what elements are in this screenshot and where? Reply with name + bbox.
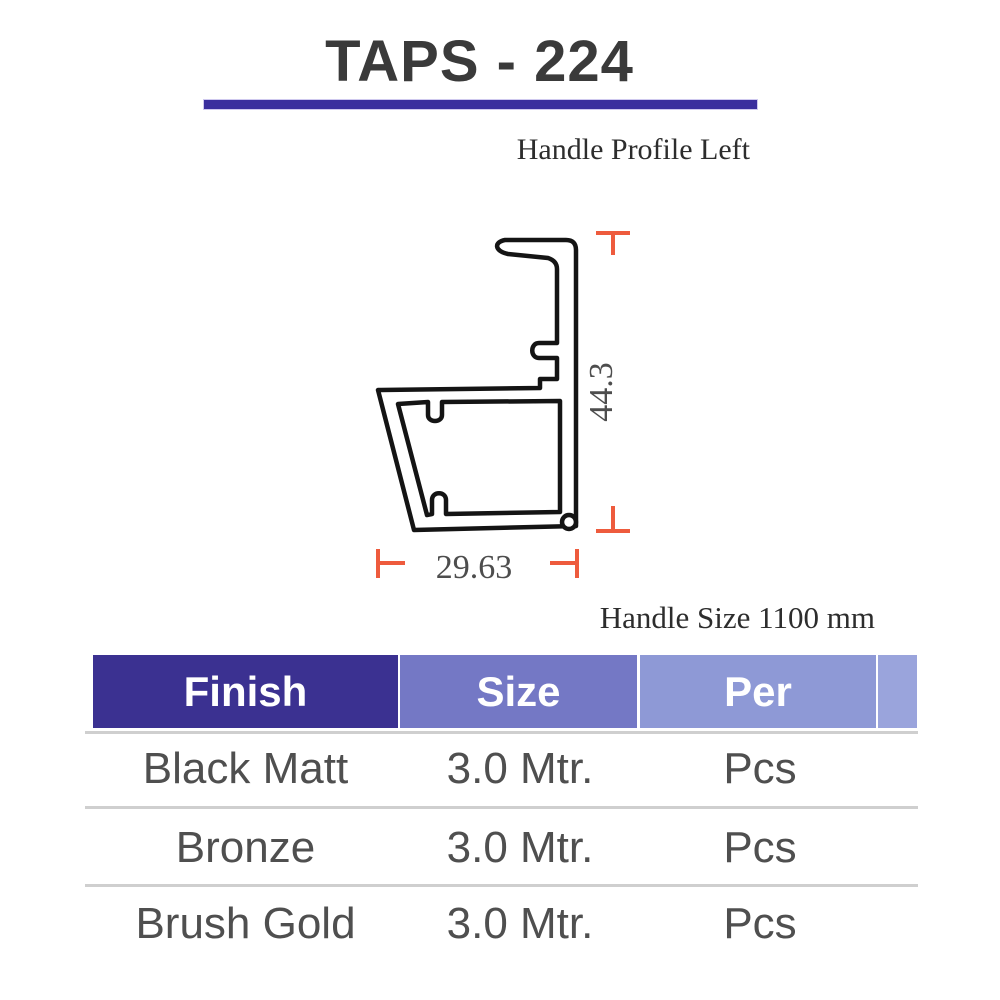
cell-size: 3.0 Mtr. [398, 888, 642, 960]
cell-per: Pcs [642, 733, 878, 805]
cell-finish: Black Matt [93, 733, 398, 805]
height-dimension-label: 44.3 [583, 362, 620, 422]
cell-finish: Bronze [93, 812, 398, 884]
handle-profile-drawing: 44.3 29.63 [340, 220, 650, 595]
dim-marker-right [552, 551, 577, 576]
profile-orientation-label: Handle Profile Left [400, 133, 750, 169]
row-divider [85, 806, 918, 809]
cell-size: 3.0 Mtr. [398, 733, 642, 805]
table-header-per: Per [640, 655, 876, 728]
table-row: Brush Gold 3.0 Mtr. Pcs [93, 888, 917, 960]
cell-per: Pcs [642, 888, 878, 960]
title-underline [203, 99, 758, 110]
row-divider [85, 884, 918, 887]
table-row: Black Matt 3.0 Mtr. Pcs [93, 733, 917, 805]
page-title: TAPS - 224 [203, 30, 756, 94]
cell-size: 3.0 Mtr. [398, 812, 642, 884]
profile-inner-outline [398, 401, 560, 515]
table-header-edge-cap [878, 655, 917, 728]
cell-per: Pcs [642, 812, 878, 884]
handle-size-note: Handle Size 1100 mm [520, 600, 875, 636]
dim-marker-left [378, 551, 403, 576]
width-dimension-label: 29.63 [436, 549, 513, 586]
profile-outer-outline [378, 240, 576, 530]
table-header-size: Size [400, 655, 637, 728]
dim-marker-top [598, 233, 628, 253]
table-header-finish: Finish [93, 655, 398, 728]
dim-marker-bottom [598, 508, 628, 531]
cell-finish: Brush Gold [93, 888, 398, 960]
catalog-page: TAPS - 224 Handle Profile Left 44.3 29.6… [0, 0, 1000, 1000]
profile-screw-port [562, 515, 576, 529]
table-row: Bronze 3.0 Mtr. Pcs [93, 812, 917, 884]
